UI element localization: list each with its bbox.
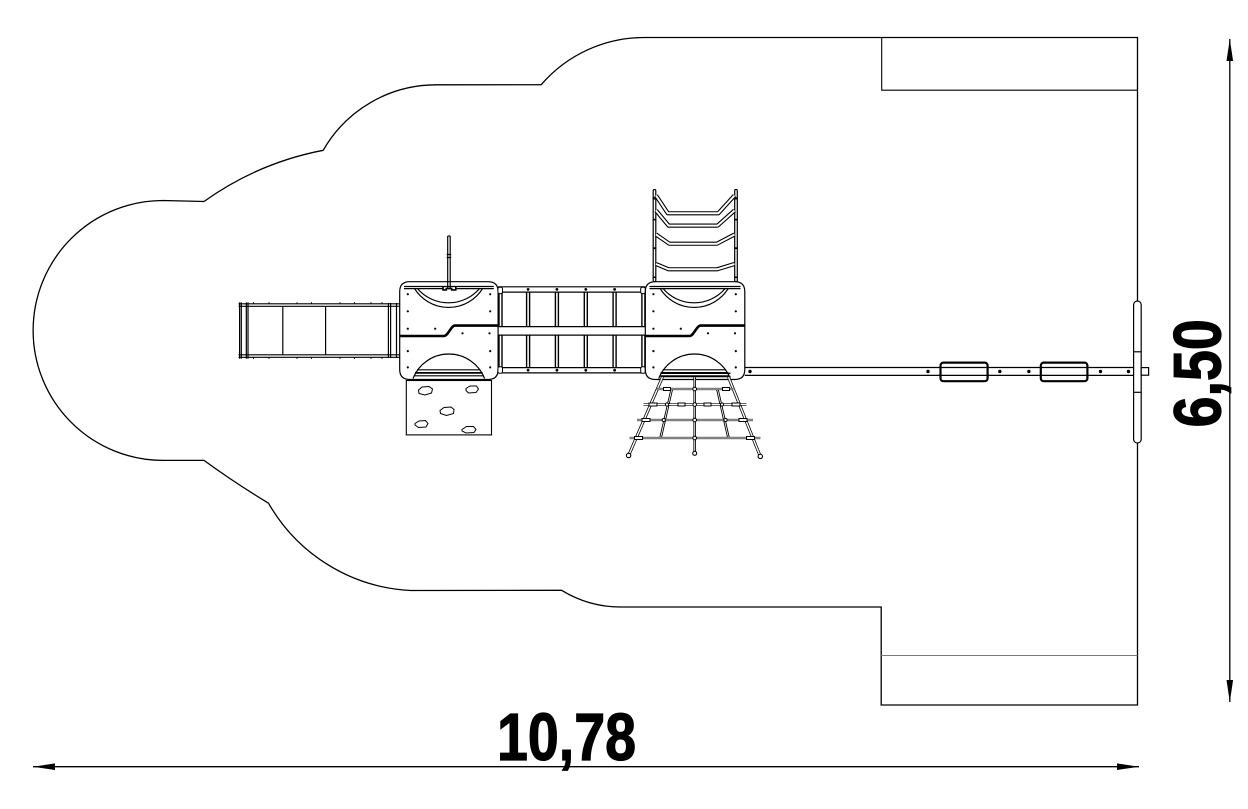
svg-text:6,50: 6,50 xyxy=(1161,319,1236,427)
svg-text:10,78: 10,78 xyxy=(497,700,636,775)
